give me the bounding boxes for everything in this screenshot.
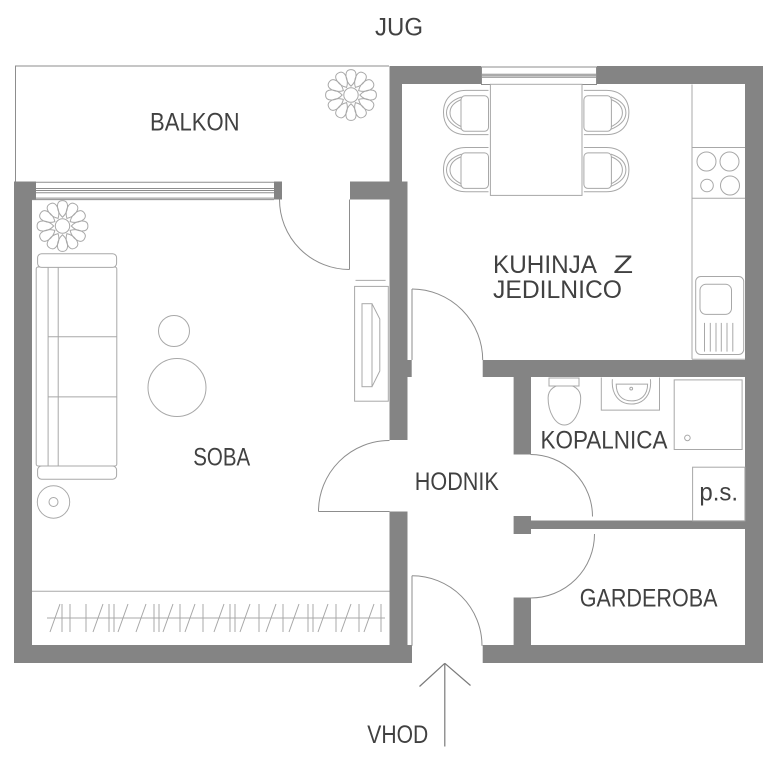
svg-text:Z: Z: [613, 251, 633, 279]
svg-text:BALKON: BALKON: [150, 109, 240, 137]
svg-text:KOPALNICA: KOPALNICA: [541, 426, 668, 454]
svg-text:JUG: JUG: [375, 14, 423, 42]
svg-text:SOBA: SOBA: [193, 444, 250, 472]
svg-text:KUHINJA: KUHINJA: [493, 251, 597, 279]
svg-text:p.s.: p.s.: [699, 479, 738, 507]
svg-text:GARDEROBA: GARDEROBA: [580, 585, 718, 613]
svg-text:JEDILNICO: JEDILNICO: [493, 276, 622, 304]
svg-text:VHOD: VHOD: [367, 721, 428, 749]
svg-text:HODNIK: HODNIK: [415, 468, 499, 496]
